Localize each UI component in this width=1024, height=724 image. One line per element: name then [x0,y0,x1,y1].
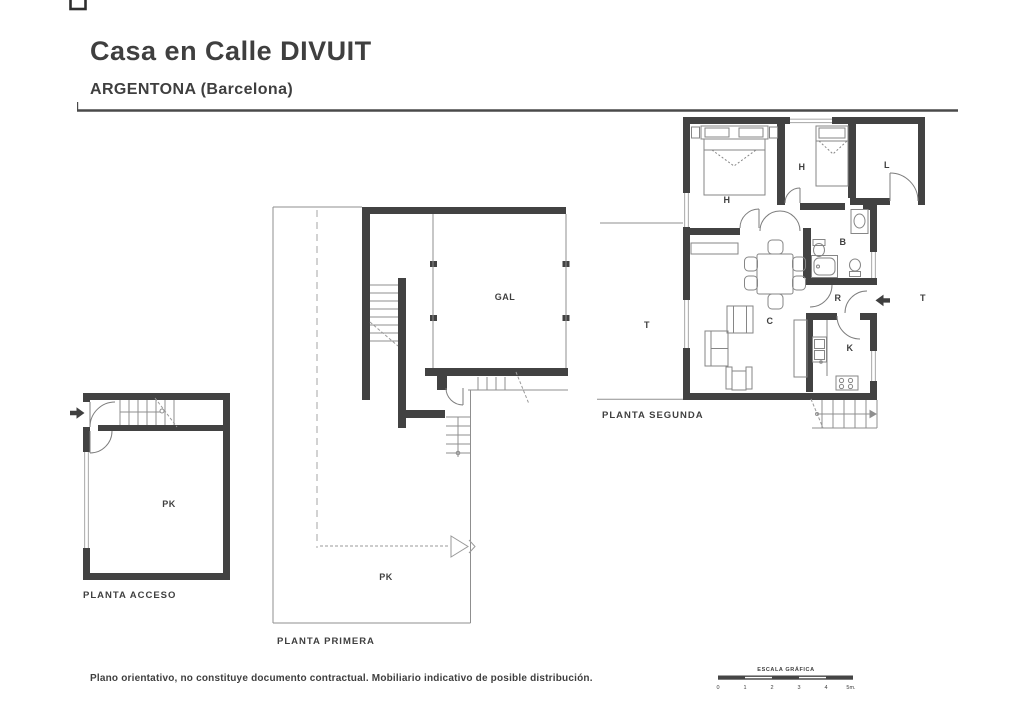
scale-tick-5: 5m. [846,685,856,691]
primera-doors [446,388,463,405]
page-subtitle: ARGENTONA (Barcelona) [90,81,293,98]
floor-plan-canvas: Casa en Calle DIVUIT ARGENTONA (Barcelon… [0,0,1024,724]
room-label-r: R [835,293,842,303]
room-label-h1: H [724,195,731,205]
plan-title-primera: PLANTA PRIMERA [277,636,375,647]
scale-tick-2: 2 [770,685,773,691]
scale-bar: ESCALA GRÁFICA 0 1 2 3 4 5m. [716,666,856,691]
acceso-stairs [120,398,177,427]
room-label-c: C [767,316,774,326]
room-label-pk-acceso: PK [162,499,176,509]
room-label-gal: GAL [495,292,516,302]
disclaimer-text: Plano orientativo, no constituye documen… [90,673,593,684]
header: Casa en Calle DIVUIT ARGENTONA (Barcelon… [71,0,959,111]
scale-tick-0: 0 [716,685,719,691]
scale-tick-1: 1 [743,685,746,691]
primera-gate-arrow-icon [451,536,475,557]
room-label-t-right: T [920,293,926,303]
plan-title-acceso: PLANTA ACCESO [83,590,176,601]
primera-stairs-lower [446,417,470,457]
room-label-k: K [847,343,854,353]
acceso-entrance-arrow-icon [70,407,85,419]
segunda-exterior-stairs [811,399,877,428]
segunda-entrance-arrow-icon [876,295,891,307]
plan-primera: GAL PK PLANTA PRIMERA [273,207,570,647]
room-label-b: B [840,237,847,247]
room-label-t-left: T [644,320,650,330]
segunda-terrace-lines [597,223,683,399]
floor-plan-page: Casa en Calle DIVUIT ARGENTONA (Barcelon… [0,0,1024,724]
footer: Plano orientativo, no constituye documen… [90,673,593,684]
plan-title-segunda: PLANTA SEGUNDA [602,410,704,421]
page-title: Casa en Calle DIVUIT [90,36,372,66]
plan-segunda: H H L B R C K T T PLANTA SEGUNDA [597,117,926,428]
scale-bar-label: ESCALA GRÁFICA [757,666,814,673]
primera-gal-walls [433,214,566,368]
scale-bar-rule [718,676,853,680]
primera-stairs-landing [478,372,529,404]
corner-mark-icon [71,0,86,9]
scale-tick-4: 4 [824,685,827,691]
plan-acceso: PK PLANTA ACCESO [70,393,230,601]
acceso-garage-door [85,452,89,548]
primera-stairs-upper [370,285,398,346]
room-label-h2: H [799,162,806,172]
room-label-pk-primera: PK [379,572,393,582]
room-label-l: L [884,160,890,170]
scale-tick-3: 3 [797,685,800,691]
